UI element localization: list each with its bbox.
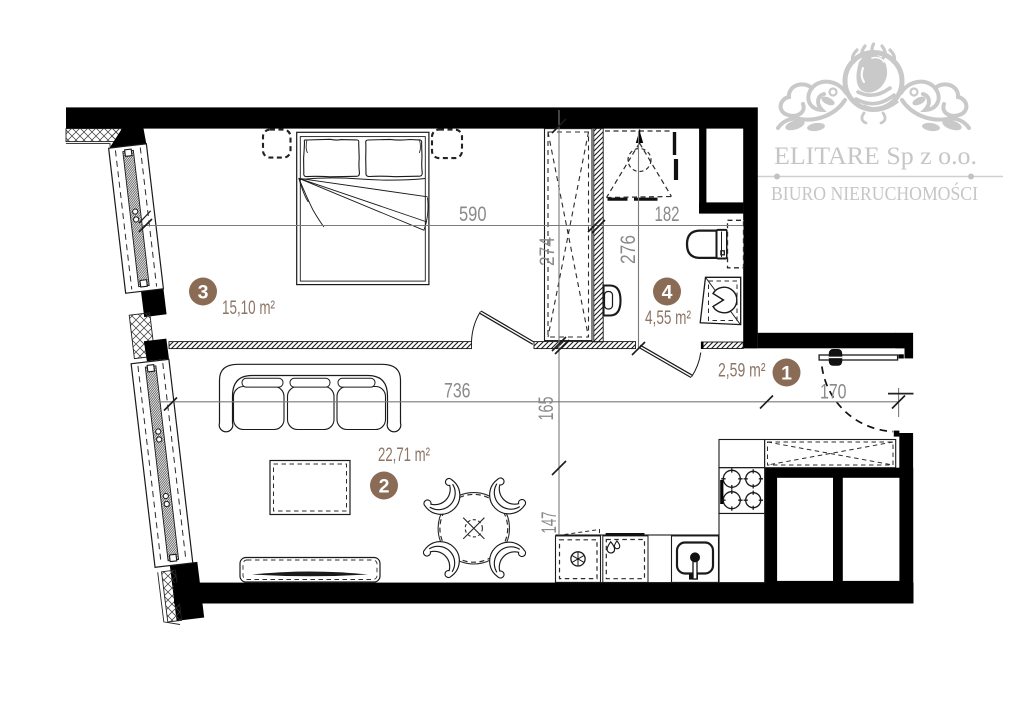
svg-text:274: 274: [536, 237, 559, 266]
svg-text:147: 147: [538, 512, 561, 534]
svg-text:170: 170: [820, 381, 847, 404]
svg-text:15,10 m²: 15,10 m²: [222, 298, 275, 319]
svg-text:182: 182: [655, 203, 680, 226]
svg-text:590: 590: [459, 203, 487, 226]
svg-text:22,71 m²: 22,71 m²: [378, 445, 430, 466]
svg-text:1: 1: [781, 363, 792, 385]
svg-text:165: 165: [535, 397, 558, 421]
svg-text:276: 276: [617, 235, 640, 264]
svg-text:736: 736: [444, 380, 471, 403]
svg-text:BIURO NIERUCHOMOŚCI: BIURO NIERUCHOMOŚCI: [771, 181, 978, 205]
svg-text:2: 2: [379, 476, 390, 498]
svg-text:ELITARE Sp z o.o.: ELITARE Sp z o.o.: [774, 141, 977, 170]
svg-text:4,55 m²: 4,55 m²: [645, 308, 691, 329]
svg-text:3: 3: [198, 282, 209, 304]
svg-text:4: 4: [662, 282, 673, 304]
svg-text:2,59 m²: 2,59 m²: [718, 361, 766, 382]
